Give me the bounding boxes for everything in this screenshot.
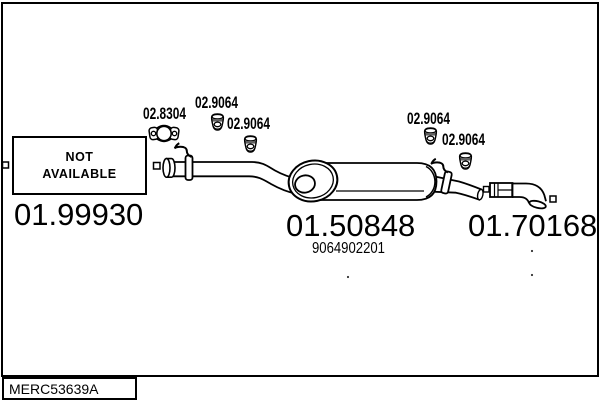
not-available-line2: AVAILABLE (42, 167, 116, 181)
rubber-hanger-icon (212, 114, 224, 130)
tail-pipe-drawing (484, 183, 557, 210)
oe-number-rear-silencer: 9064902201 (312, 241, 385, 257)
exhaust-clamp-icon (149, 126, 180, 142)
hanger-part-number: 02.9064 (442, 131, 485, 148)
hanger-part-number: 02.9064 (195, 94, 238, 111)
rear-silencer-drawing (285, 156, 452, 206)
parts-diagram-page: NOT AVAILABLE 01.99930 01.50848 90649022… (0, 0, 600, 400)
hanger-part-number: 02.9064 (227, 115, 270, 132)
rubber-hanger-icon (460, 153, 472, 169)
clamp-part-number: 02.8304 (143, 105, 186, 122)
part-number-rear-silencer: 01.50848 (286, 210, 415, 241)
catalog-code: MERC53639A (9, 381, 99, 397)
rubber-hanger-icon (245, 136, 257, 152)
not-available-line1: NOT (66, 150, 94, 164)
rubber-hanger-icon (425, 128, 437, 144)
catalog-code-box: MERC53639A (2, 377, 137, 400)
hanger-part-number: 02.9064 (407, 110, 450, 127)
part-number-tail-pipe: 01.70168 (468, 210, 597, 241)
part-number-front-pipe: 01.99930 (14, 199, 143, 230)
not-available-box: NOT AVAILABLE (12, 136, 147, 195)
